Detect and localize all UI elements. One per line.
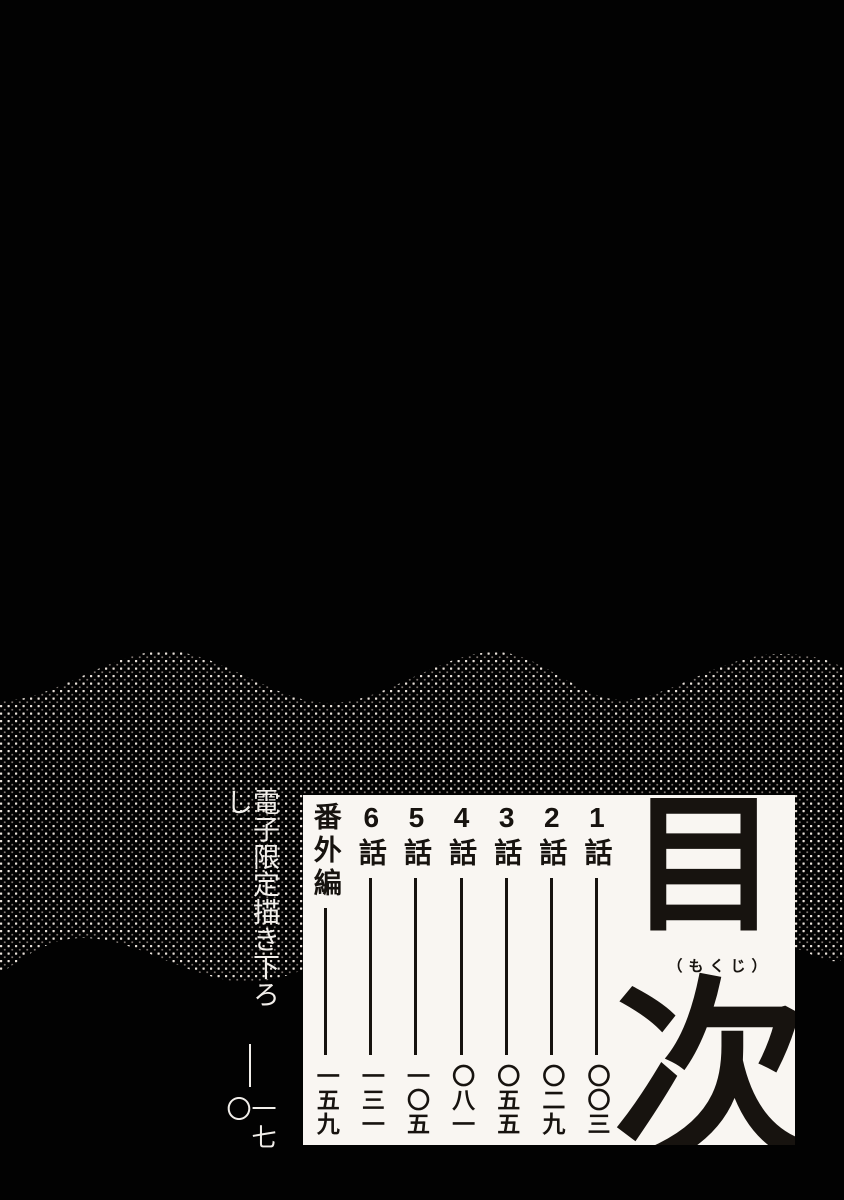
toc-leader-line: [414, 878, 417, 1055]
toc-panel: 目 （もくじ） 次 1話 〇〇三 2話 〇二九 3話 〇五五 4話: [303, 795, 795, 1145]
toc-entry-ch3: 3話 〇五五: [484, 795, 529, 1145]
toc-entry-label: 6話: [357, 802, 385, 871]
toc-entry-page-number: 〇八一: [450, 1064, 473, 1136]
toc-entry-list: 1話 〇〇三 2話 〇二九 3話 〇五五 4話 〇八一 5話: [303, 795, 619, 1145]
toc-leader-line: [460, 878, 463, 1055]
toc-entry-label: 3話: [492, 802, 520, 871]
bonus-leader-line: [249, 1044, 251, 1088]
toc-entry-label: 5話: [402, 802, 430, 871]
toc-leader-line: [595, 878, 598, 1055]
toc-title-char-moku: 目: [629, 795, 779, 942]
bonus-chapter-entry: 電子限定描き下ろし 一七〇: [226, 788, 274, 1180]
toc-entry-ch6: 6話 一三一: [348, 795, 393, 1145]
toc-entry-page-number: 〇二九: [540, 1064, 563, 1136]
toc-entry-ch1: 1話 〇〇三: [574, 795, 619, 1145]
toc-entry-label: 4話: [447, 802, 475, 871]
toc-leader-line: [369, 878, 372, 1055]
toc-leader-line: [550, 878, 553, 1055]
toc-entry-label: 1話: [582, 802, 610, 871]
toc-entry-extra: 番外編 一五九: [303, 795, 348, 1145]
manga-toc-page: 電子限定描き下ろし 一七〇 目 （もくじ） 次 1話 〇〇三 2話 〇二九 3話…: [0, 0, 844, 1200]
toc-leader-line: [324, 908, 327, 1055]
toc-entry-label: 2話: [537, 802, 565, 871]
toc-entry-ch2: 2話 〇二九: [529, 795, 574, 1145]
bonus-chapter-label: 電子限定描き下ろし: [223, 788, 277, 1035]
toc-title-char-ji: 次: [613, 975, 795, 1145]
bonus-chapter-page-number: 一七〇: [225, 1096, 275, 1180]
toc-entry-page-number: 〇五五: [495, 1064, 518, 1136]
toc-entry-ch5: 5話 一〇五: [393, 795, 438, 1145]
toc-entry-page-number: 〇〇三: [585, 1064, 608, 1136]
toc-entry-ch4: 4話 〇八一: [439, 795, 484, 1145]
toc-entry-page-number: 一三一: [359, 1064, 382, 1136]
toc-leader-line: [505, 878, 508, 1055]
toc-entry-page-number: 一〇五: [404, 1064, 427, 1136]
toc-entry-label: 番外編: [312, 802, 340, 901]
toc-entry-page-number: 一五九: [314, 1064, 337, 1136]
